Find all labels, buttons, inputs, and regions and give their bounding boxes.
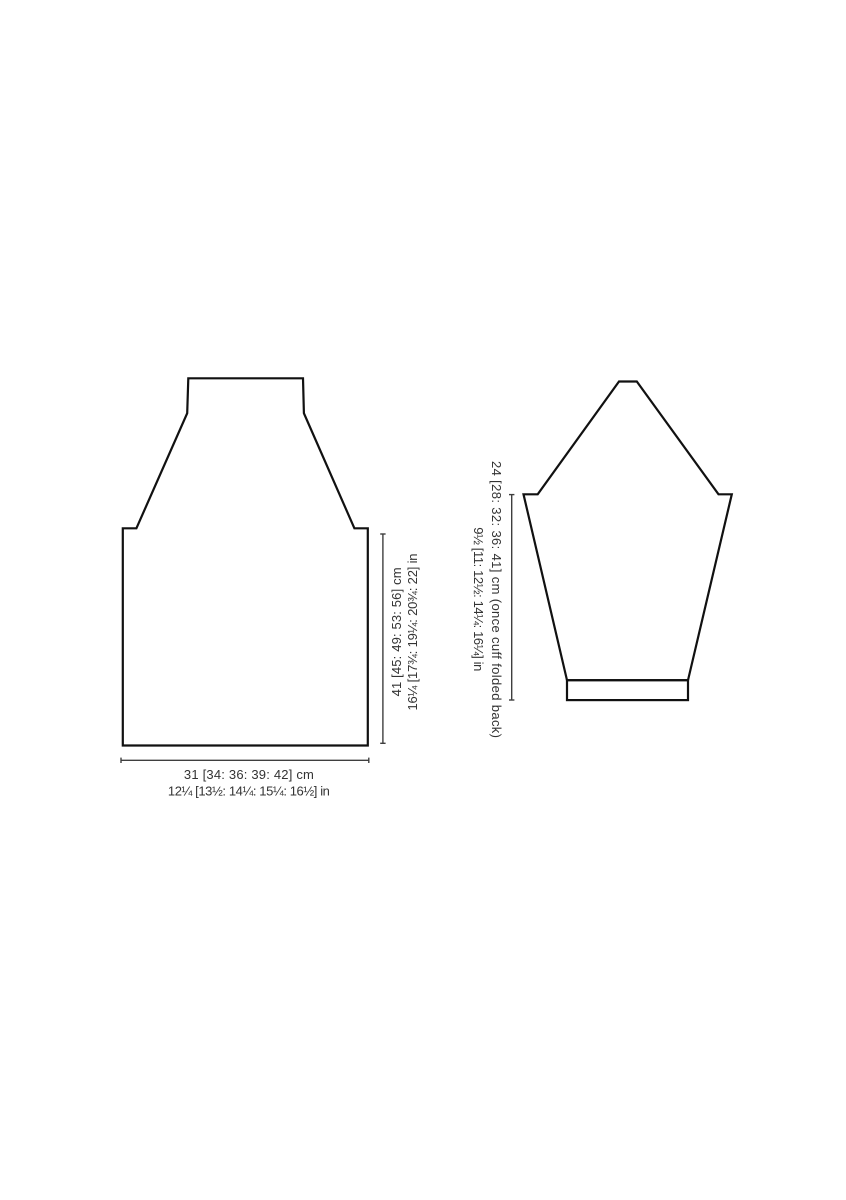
svg-text:41 [45: 49: 53: 56] cm: 41 [45: 49: 53: 56] cm xyxy=(389,567,404,696)
svg-text:12¼ [13½: 14¼: 15¼: 16½] in: 12¼ [13½: 14¼: 15¼: 16½] in xyxy=(168,783,330,798)
svg-text:16¼ [17¾: 19¼: 20¾: 22] in: 16¼ [17¾: 19¼: 20¾: 22] in xyxy=(405,554,420,711)
svg-text:9½ [11: 12½: 14¼: 16¼] in: 9½ [11: 12½: 14¼: 16¼] in xyxy=(471,527,486,671)
svg-text:31 [34: 36: 39: 42] cm: 31 [34: 36: 39: 42] cm xyxy=(184,767,314,782)
svg-text:24 [28: 32: 36: 41] cm (once c: 24 [28: 32: 36: 41] cm (once cuff folded… xyxy=(489,461,504,738)
